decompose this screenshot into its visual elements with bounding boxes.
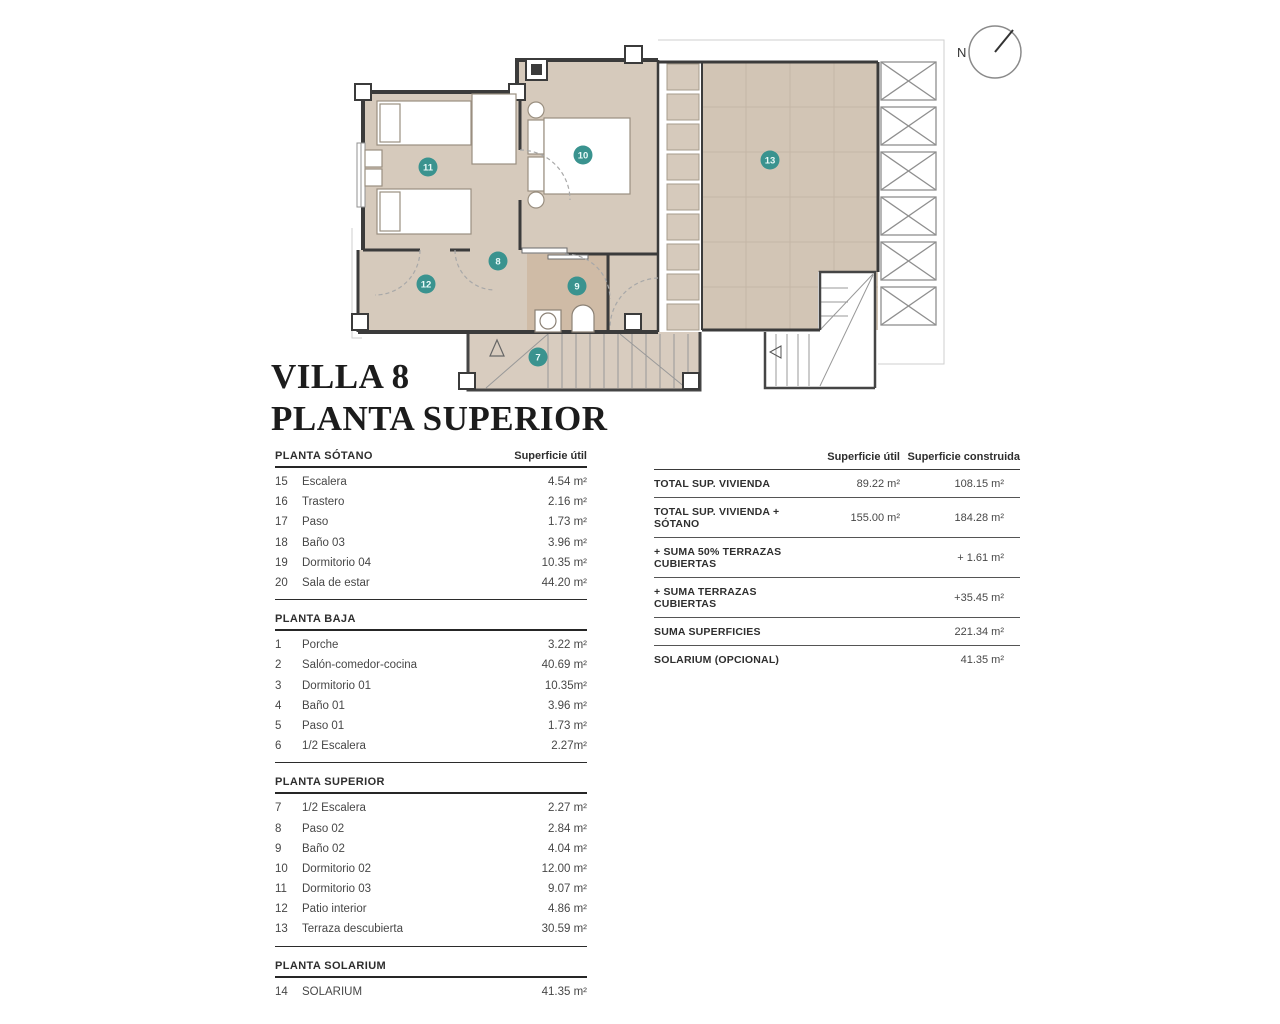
- row-value: 2.84 m²: [548, 823, 587, 835]
- row-label: Salón-comedor-cocina: [302, 659, 542, 671]
- row-value: 30.59 m²: [542, 923, 587, 935]
- table-row: 8Paso 022.84 m²: [275, 818, 587, 838]
- table-row: 20Sala de estar44.20 m²: [275, 573, 587, 593]
- row-number: 9: [275, 843, 302, 855]
- row-label: Paso: [302, 516, 548, 528]
- row-number: 13: [275, 923, 302, 935]
- row-label: SOLARIUM: [302, 986, 542, 998]
- summary-label: TOTAL SUP. VIVIENDA + SÓTANO: [654, 506, 795, 530]
- row-label: Dormitorio 02: [302, 863, 542, 875]
- row-label: Escalera: [302, 476, 548, 488]
- row-number: 5: [275, 720, 302, 732]
- row-value: 10.35m²: [545, 680, 587, 692]
- louver-slats: [667, 64, 699, 330]
- section-title: PLANTA SOLARIUM: [275, 960, 386, 972]
- row-value: 41.35 m²: [542, 986, 587, 998]
- row-label: Dormitorio 03: [302, 883, 548, 895]
- row-value: 40.69 m²: [542, 659, 587, 671]
- table-row: 11Dormitorio 039.07 m²: [275, 879, 587, 899]
- row-number: 20: [275, 577, 302, 589]
- summary-col-construida: Superficie construida: [900, 451, 1020, 463]
- room-badge-label: 11: [423, 163, 434, 174]
- floor-name: PLANTA SUPERIOR: [271, 398, 607, 440]
- row-number: 1: [275, 639, 302, 651]
- row-number: 19: [275, 557, 302, 569]
- row-value: 1.73 m²: [548, 720, 587, 732]
- summary-label: SOLARIUM (OPCIONAL): [654, 654, 795, 666]
- row-label: Dormitorio 04: [302, 557, 542, 569]
- room-badge-10: 10: [574, 146, 593, 165]
- row-number: 6: [275, 740, 302, 752]
- room-badge-label: 13: [765, 156, 776, 167]
- summary-construida-value: +35.45 m²: [900, 592, 1020, 604]
- table-row: 17Paso1.73 m²: [275, 512, 587, 532]
- section-header: PLANTA SÓTANO Superficie útil: [275, 446, 587, 468]
- floor-plan-drawing: 11 10 13 8 9 12 7 N: [340, 18, 1040, 413]
- row-label: Paso 02: [302, 823, 548, 835]
- table-row: 15Escalera4.54 m²: [275, 472, 587, 492]
- compass-north-label: N: [957, 45, 966, 60]
- table-row: 5Paso 011.73 m²: [275, 716, 587, 736]
- row-value: 3.96 m²: [548, 700, 587, 712]
- row-number: 4: [275, 700, 302, 712]
- row-label: Baño 03: [302, 537, 548, 549]
- row-label: Baño 01: [302, 700, 548, 712]
- row-value: 4.86 m²: [548, 903, 587, 915]
- table-row: 18Baño 033.96 m²: [275, 533, 587, 553]
- row-number: 11: [275, 883, 302, 895]
- room-badge-9: 9: [568, 277, 587, 296]
- table-row: 71/2 Escalera2.27 m²: [275, 798, 587, 818]
- section-title: PLANTA BAJA: [275, 613, 356, 625]
- row-value: 2.27 m²: [548, 802, 587, 814]
- summary-construida-value: 41.35 m²: [900, 654, 1020, 666]
- row-label: Sala de estar: [302, 577, 542, 589]
- table-row: 9Baño 024.04 m²: [275, 839, 587, 859]
- summary-row: SOLARIUM (OPCIONAL) 41.35 m²: [654, 646, 1020, 673]
- section-header: PLANTA BAJA: [275, 609, 587, 631]
- row-label: Trastero: [302, 496, 548, 508]
- room-badge-label: 8: [495, 257, 500, 268]
- summary-construida-value: + 1.61 m²: [900, 552, 1020, 564]
- summary-label: TOTAL SUP. VIVIENDA: [654, 478, 795, 490]
- row-label: Baño 02: [302, 843, 548, 855]
- row-number: 8: [275, 823, 302, 835]
- row-label: 1/2 Escalera: [302, 740, 551, 752]
- row-value: 10.35 m²: [542, 557, 587, 569]
- row-number: 18: [275, 537, 302, 549]
- row-value: 4.54 m²: [548, 476, 587, 488]
- room-badge-label: 9: [574, 282, 579, 293]
- table-row: 19Dormitorio 0410.35 m²: [275, 553, 587, 573]
- summary-util-value: 89.22 m²: [795, 478, 900, 490]
- section-title: PLANTA SÓTANO: [275, 450, 373, 462]
- section-planta-baja: PLANTA BAJA 1Porche3.22 m² 2Salón-comedo…: [275, 609, 587, 763]
- row-value: 1.73 m²: [548, 516, 587, 528]
- floorplan-sheet: { "title": { "line1": "VILLA 8", "line2"…: [0, 0, 1280, 1024]
- row-value: 12.00 m²: [542, 863, 587, 875]
- table-row: 61/2 Escalera2.27m²: [275, 736, 587, 756]
- section-planta-sotano: PLANTA SÓTANO Superficie útil 15Escalera…: [275, 446, 587, 600]
- row-label: Paso 01: [302, 720, 548, 732]
- row-number: 3: [275, 680, 302, 692]
- table-row: 10Dormitorio 0212.00 m²: [275, 859, 587, 879]
- summary-construida-value: 221.34 m²: [900, 626, 1020, 638]
- row-number: 7: [275, 802, 302, 814]
- table-row: 12Patio interior4.86 m²: [275, 899, 587, 919]
- table-row: 3Dormitorio 0110.35m²: [275, 676, 587, 696]
- row-number: 10: [275, 863, 302, 875]
- summary-label: SUMA SUPERFICIES: [654, 626, 795, 638]
- section-header: PLANTA SOLARIUM: [275, 956, 587, 978]
- row-value: 9.07 m²: [548, 883, 587, 895]
- summary-row: TOTAL SUP. VIVIENDA + SÓTANO 155.00 m² 1…: [654, 498, 1020, 538]
- summary-row: + SUMA 50% TERRAZAS CUBIERTAS + 1.61 m²: [654, 538, 1020, 578]
- summary-col-util: Superficie útil: [795, 451, 900, 463]
- row-number: 17: [275, 516, 302, 528]
- row-value: 4.04 m²: [548, 843, 587, 855]
- section-header: PLANTA SUPERIOR: [275, 772, 587, 794]
- row-number: 12: [275, 903, 302, 915]
- row-number: 2: [275, 659, 302, 671]
- areas-table: PLANTA SÓTANO Superficie útil 15Escalera…: [275, 446, 587, 1008]
- section-planta-superior: PLANTA SUPERIOR 71/2 Escalera2.27 m² 8Pa…: [275, 772, 587, 946]
- room-badge-12: 12: [417, 275, 436, 294]
- row-label: Dormitorio 01: [302, 680, 545, 692]
- summary-construida-value: 108.15 m²: [900, 478, 1020, 490]
- table-row: 16Trastero2.16 m²: [275, 492, 587, 512]
- room-badge-label: 10: [578, 151, 589, 162]
- row-value: 2.27m²: [551, 740, 587, 752]
- pergola-beams: [881, 62, 936, 325]
- table-row: 4Baño 013.96 m²: [275, 696, 587, 716]
- summary-row: TOTAL SUP. VIVIENDA 89.22 m² 108.15 m²: [654, 470, 1020, 498]
- section-planta-solarium: PLANTA SOLARIUM 14SOLARIUM41.35 m²: [275, 956, 587, 1008]
- roof-vent: [526, 59, 547, 80]
- summary-util-value: 155.00 m²: [795, 512, 900, 524]
- table-row: 2Salón-comedor-cocina40.69 m²: [275, 655, 587, 675]
- summary-row: SUMA SUPERFICIES 221.34 m²: [654, 618, 1020, 646]
- compass: N: [957, 26, 1021, 78]
- summary-header: Superficie útil Superficie construida: [654, 446, 1020, 470]
- summary-label: + SUMA 50% TERRAZAS CUBIERTAS: [654, 546, 795, 570]
- summary-construida-value: 184.28 m²: [900, 512, 1020, 524]
- summary-table: Superficie útil Superficie construida TO…: [654, 446, 1020, 673]
- room-badge-13: 13: [761, 151, 780, 170]
- window: [357, 143, 365, 207]
- page-title: VILLA 8 PLANTA SUPERIOR: [271, 356, 607, 440]
- floor-plan: 11 10 13 8 9 12 7 N: [340, 18, 1040, 413]
- row-number: 16: [275, 496, 302, 508]
- summary-label: + SUMA TERRAZAS CUBIERTAS: [654, 586, 795, 610]
- row-label: Terraza descubierta: [302, 923, 542, 935]
- row-label: Patio interior: [302, 903, 548, 915]
- villa-name: VILLA 8: [271, 356, 607, 398]
- room-badge-11: 11: [419, 158, 438, 177]
- row-value: 3.96 m²: [548, 537, 587, 549]
- row-label: Porche: [302, 639, 548, 651]
- room-badge-label: 12: [421, 280, 432, 291]
- row-number: 15: [275, 476, 302, 488]
- row-number: 14: [275, 986, 302, 998]
- section-title: PLANTA SUPERIOR: [275, 776, 385, 788]
- table-row: 14SOLARIUM41.35 m²: [275, 982, 587, 1002]
- row-value: 44.20 m²: [542, 577, 587, 589]
- table-row: 13Terraza descubierta30.59 m²: [275, 919, 587, 939]
- summary-row: + SUMA TERRAZAS CUBIERTAS +35.45 m²: [654, 578, 1020, 618]
- table-row: 1Porche3.22 m²: [275, 635, 587, 655]
- row-value: 2.16 m²: [548, 496, 587, 508]
- room-badge-8: 8: [489, 252, 508, 271]
- area-column-header: Superficie útil: [514, 450, 587, 462]
- row-label: 1/2 Escalera: [302, 802, 548, 814]
- row-value: 3.22 m²: [548, 639, 587, 651]
